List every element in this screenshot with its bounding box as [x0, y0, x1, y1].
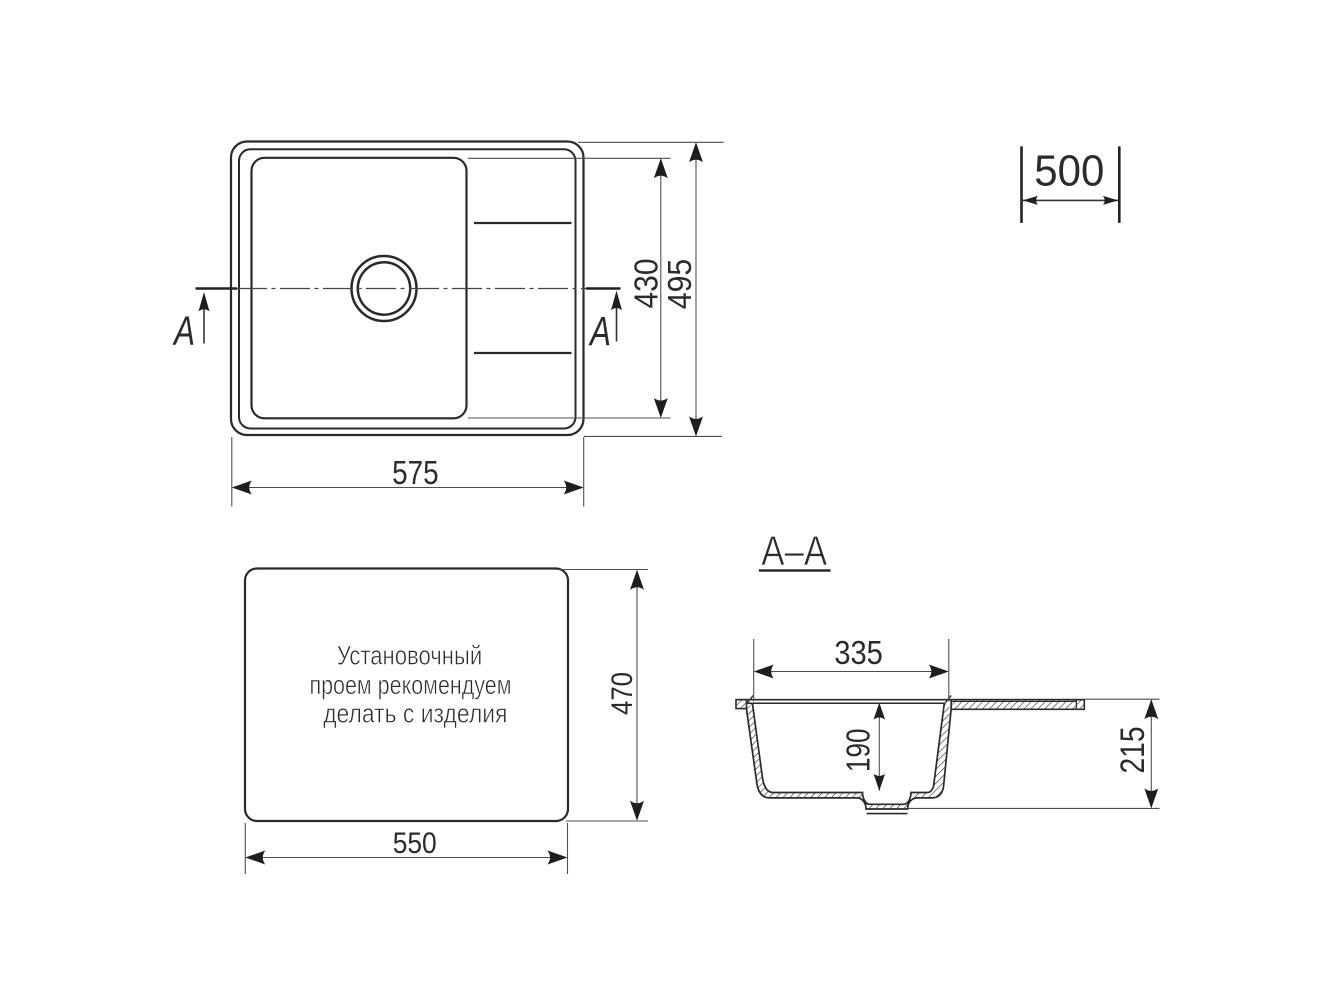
svg-text:495: 495	[661, 259, 698, 310]
svg-text:Установочный: Установочный	[337, 641, 482, 671]
svg-text:470: 470	[606, 672, 639, 715]
svg-text:575: 575	[392, 454, 439, 491]
svg-text:335: 335	[834, 634, 883, 671]
svg-text:A: A	[588, 308, 611, 354]
svg-text:190: 190	[840, 728, 877, 772]
svg-text:A: A	[172, 308, 195, 354]
svg-text:A–A: A–A	[761, 527, 827, 574]
svg-text:550: 550	[393, 827, 437, 860]
svg-text:430: 430	[628, 259, 665, 309]
svg-text:проем рекомендуем: проем рекомендуем	[309, 670, 511, 700]
svg-text:делать с изделия: делать с изделия	[323, 699, 507, 729]
svg-text:215: 215	[1114, 727, 1152, 774]
svg-text:500: 500	[1034, 147, 1104, 196]
